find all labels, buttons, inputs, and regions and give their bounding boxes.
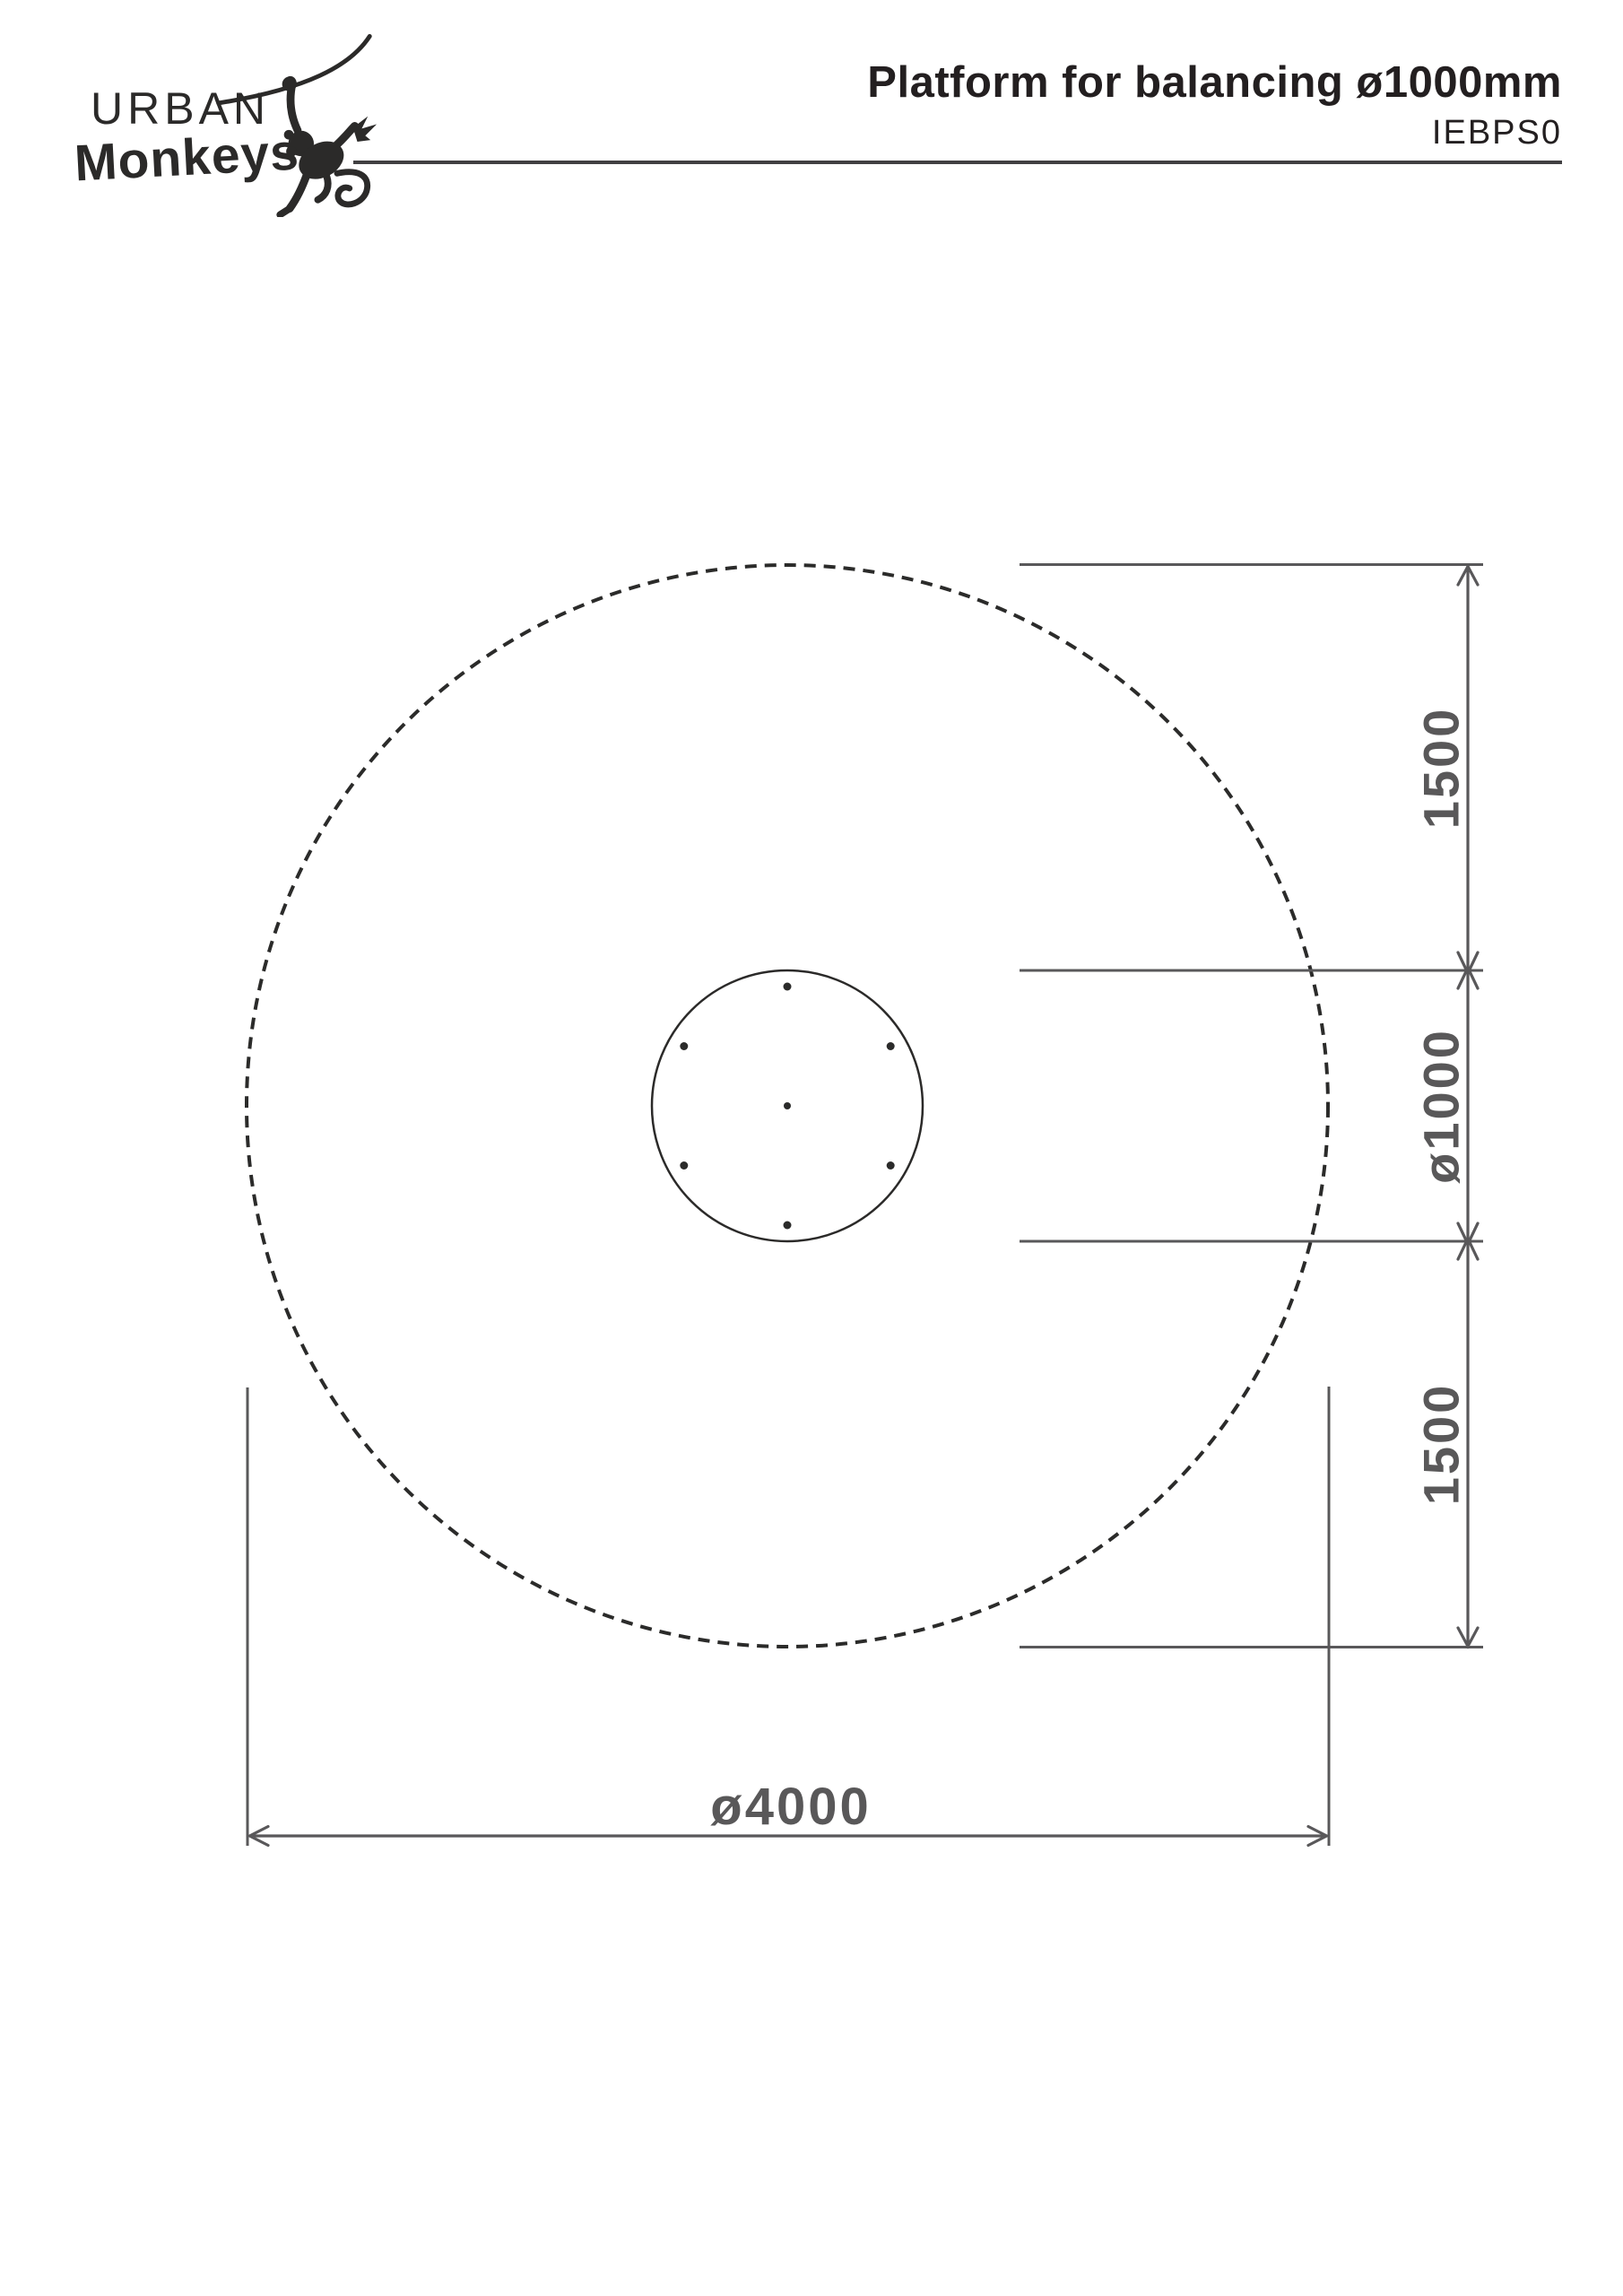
page: { "header": { "logo": { "top": "URBAN", … bbox=[0, 0, 1623, 2296]
dimension-label-platform-diameter: ø1000 bbox=[1413, 1028, 1470, 1184]
dimension-label-bottom-offset: 1500 bbox=[1413, 1383, 1470, 1506]
bolt-hole-dot bbox=[784, 1222, 792, 1230]
bolt-hole-dot bbox=[680, 1042, 688, 1050]
bolt-hole-dots bbox=[680, 983, 894, 1230]
dimension-label-zone-diameter: ø4000 bbox=[710, 1778, 871, 1836]
center-mark-dot bbox=[784, 1102, 791, 1109]
bolt-hole-dot bbox=[784, 983, 792, 991]
bolt-hole-dot bbox=[887, 1161, 895, 1170]
bolt-hole-dot bbox=[887, 1042, 895, 1050]
technical-drawing: 1500 ø1000 1500 ø4000 bbox=[0, 0, 1623, 2296]
bolt-hole-dot bbox=[680, 1161, 688, 1170]
dimension-label-top-offset: 1500 bbox=[1413, 707, 1470, 830]
